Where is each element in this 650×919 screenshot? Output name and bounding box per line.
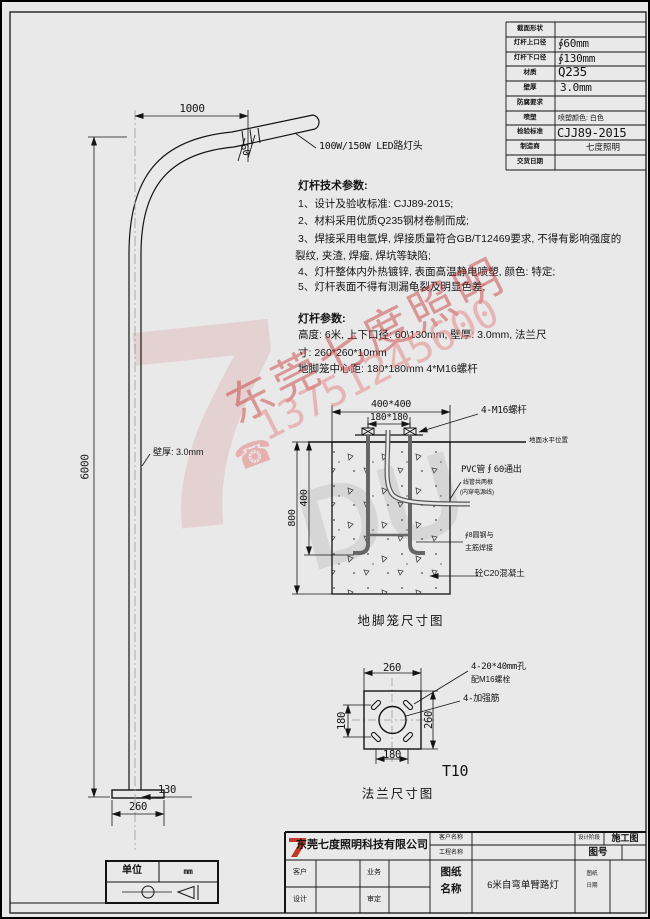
spec-row-label: 喷塑 <box>524 115 537 122</box>
rebar-label2: 主筋焊接 <box>465 545 493 552</box>
pole-params-line: 高度: 6米, 上下口径: 60\130mm, 壁厚: 3.0mm, 法兰尺 <box>298 330 547 341</box>
spec-top-diameter-value: ∮60mm <box>558 38 589 49</box>
spec-thickness-value: 3.0mm <box>560 82 592 93</box>
spec-coating-value: 喷塑颜色: 白色 <box>558 115 604 122</box>
tech-note-line: 裂纹, 夹渣, 焊瘤, 焊坑等缺陷; <box>295 251 431 262</box>
lamp-head-label: 100W/150W LED路灯头 <box>319 142 422 152</box>
foundation-caption: 地脚笼尺寸图 <box>357 615 444 628</box>
drawing-date-label2: 日期 <box>586 884 597 890</box>
design-stage-label: 设计阶段 <box>578 836 600 842</box>
spec-row-label: 灯杆下口径 <box>514 55 547 62</box>
drawing-sheet: 7 DU <box>0 0 650 919</box>
review-label: 审定 <box>367 896 381 903</box>
dim-flange-width-top: 260 <box>383 663 401 674</box>
company-name: 东莞七度照明科技有限公司 <box>296 840 428 851</box>
rebar-label: ∮8圆钢与 <box>465 532 494 539</box>
client-name-label: 客户名称 <box>439 835 463 841</box>
spec-row-label: 壁厚 <box>524 85 537 92</box>
design-stage-value: 施工图 <box>611 834 638 843</box>
flange-thickness-label: T10 <box>442 764 468 779</box>
spec-bottom-diameter-value: ∮130mm <box>558 53 595 64</box>
projection-symbol-icon <box>122 885 198 900</box>
dim-bottom-diameter: 130 <box>158 785 176 796</box>
spec-row-label: 防腐要求 <box>517 100 543 107</box>
units-label: 单位 <box>122 866 142 876</box>
drawing-date-label1: 图纸 <box>586 872 597 878</box>
dim-foundation-inner: 180*180 <box>370 413 408 423</box>
wall-thickness-label: 壁厚: 3.0mm <box>153 448 204 457</box>
project-name-label: 工程名称 <box>439 850 463 856</box>
spec-row-label: 检验标准 <box>517 129 543 136</box>
flange-bolts-label: 配M16螺栓 <box>471 676 511 684</box>
drawing-name-label1: 图纸 <box>441 867 462 878</box>
dim-foundation-depth: 800 <box>288 509 298 526</box>
client-label: 客户 <box>293 869 307 876</box>
flange-caption: 法兰尺寸图 <box>362 788 435 801</box>
dim-arm-length: 1000 <box>179 103 204 114</box>
drawing-no-label: 图号 <box>588 848 607 858</box>
anchor-bolts-label: 4-M16螺杆 <box>481 406 527 416</box>
dim-base-plate: 260 <box>129 802 147 813</box>
tech-note-line: 1、设计及验收标准: CJJ89-2015; <box>298 199 453 210</box>
spec-row-label: 材质 <box>524 70 537 77</box>
pvc-conduit-note: 线管共两根 <box>463 480 493 486</box>
dim-anchor-depth: 400 <box>300 489 310 506</box>
spec-row-label: 灯杆上口径 <box>514 40 547 47</box>
design-label: 设计 <box>293 896 307 903</box>
dim-flange-width-right: 260 <box>424 711 435 729</box>
tech-note-line: 2、材料采用优质Q235钢材卷制而成; <box>298 216 469 227</box>
ground-level-label: 地面水平位置 <box>529 438 568 445</box>
tech-note-line: 5、灯杆表面不得有测漏龟裂及明显色差; <box>298 282 485 293</box>
concrete-label: 砼C20混凝土 <box>475 569 525 578</box>
spec-row-label: 截面形状 <box>517 26 543 33</box>
dim-pole-height: 6000 <box>80 454 91 479</box>
dim-foundation-outer: 400*400 <box>371 400 411 410</box>
pvc-conduit-label: PVC管∮60通出 <box>461 466 521 475</box>
cad-linework <box>2 2 650 919</box>
spec-maker-value: 七度照明 <box>586 143 620 152</box>
pole-dimensions <box>88 110 316 826</box>
dim-flange-holes-h: 180 <box>383 750 401 761</box>
drawing-name-value: 6米自弯单臂路灯 <box>487 881 559 891</box>
spec-standard-value: CJJ89-2015 <box>557 127 626 139</box>
units-value: mm <box>183 868 192 876</box>
flange-holes-label: 4-20*40mm孔 <box>471 663 526 672</box>
pole-params-line: 地脚笼中心距: 180*180mm 4*M16螺杆 <box>298 364 478 375</box>
pole-params-title: 灯杆参数: <box>298 314 346 325</box>
spec-row-label: 制造商 <box>520 144 540 151</box>
flange-rib-label: 4-加强筋 <box>463 695 499 704</box>
pole-params-line: 寸: 260*260*10mm <box>298 348 387 359</box>
tech-note-line: 3、焊接采用电氩焊, 焊接质量符合GB/T12469要求, 不得有影响强度的 <box>298 234 621 245</box>
pvc-conduit-note2: (内穿电源线) <box>460 490 494 496</box>
pole-elevation <box>112 115 319 798</box>
tech-notes-title: 灯杆技术参数: <box>298 181 368 192</box>
dim-flange-holes-v: 180 <box>337 712 348 730</box>
drawing-name-label2: 名称 <box>441 884 462 895</box>
tech-note-line: 4、灯杆整体内外热镀锌, 表面高温静电喷塑, 颜色: 特定; <box>298 267 555 278</box>
business-label: 业务 <box>367 869 381 876</box>
spec-row-label: 交货日期 <box>517 159 543 166</box>
spec-material-value: Q235 <box>558 66 587 79</box>
